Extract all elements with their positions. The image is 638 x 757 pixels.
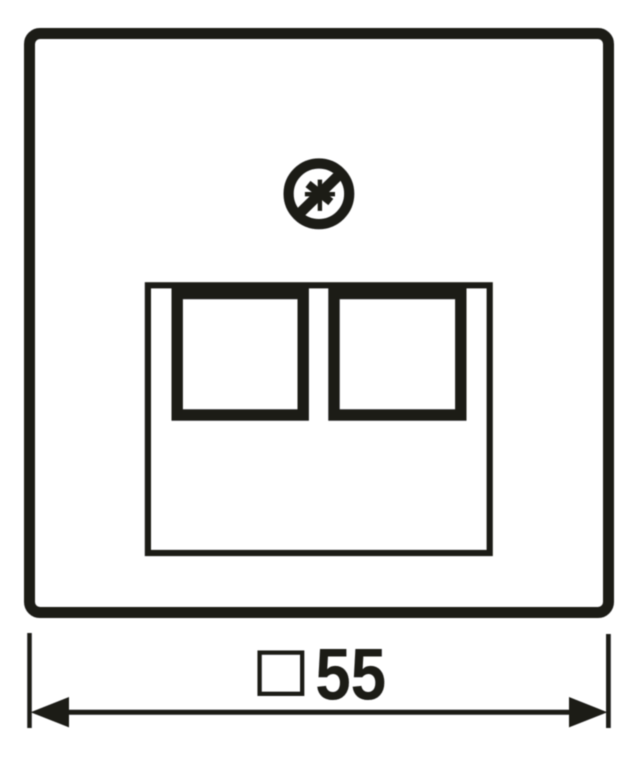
svg-text:55: 55	[315, 633, 386, 715]
